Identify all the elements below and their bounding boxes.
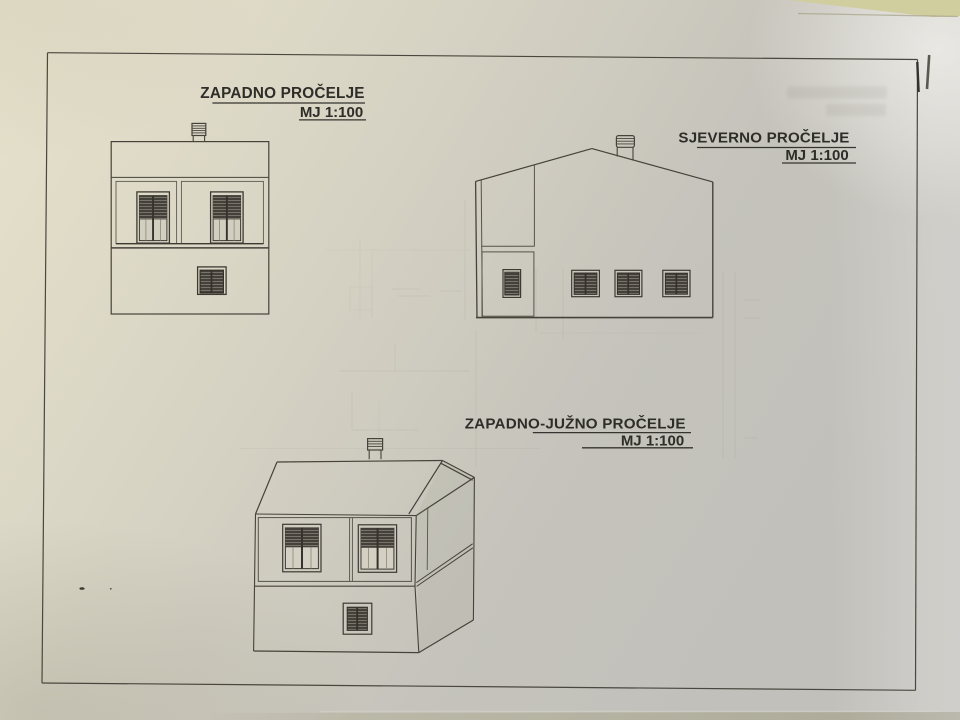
svg-text:MJ 1:100: MJ 1:100	[300, 104, 363, 121]
svg-text:MJ 1:100: MJ 1:100	[785, 147, 848, 164]
svg-text:SJEVERNO PROČELJE: SJEVERNO PROČELJE	[678, 129, 849, 147]
svg-text:ZAPADNO-JUŽNO PROČELJE: ZAPADNO-JUŽNO PROČELJE	[465, 415, 686, 433]
svg-text:MJ 1:100: MJ 1:100	[621, 433, 684, 450]
svg-text:ZAPADNO PROČELJE: ZAPADNO PROČELJE	[200, 84, 364, 102]
